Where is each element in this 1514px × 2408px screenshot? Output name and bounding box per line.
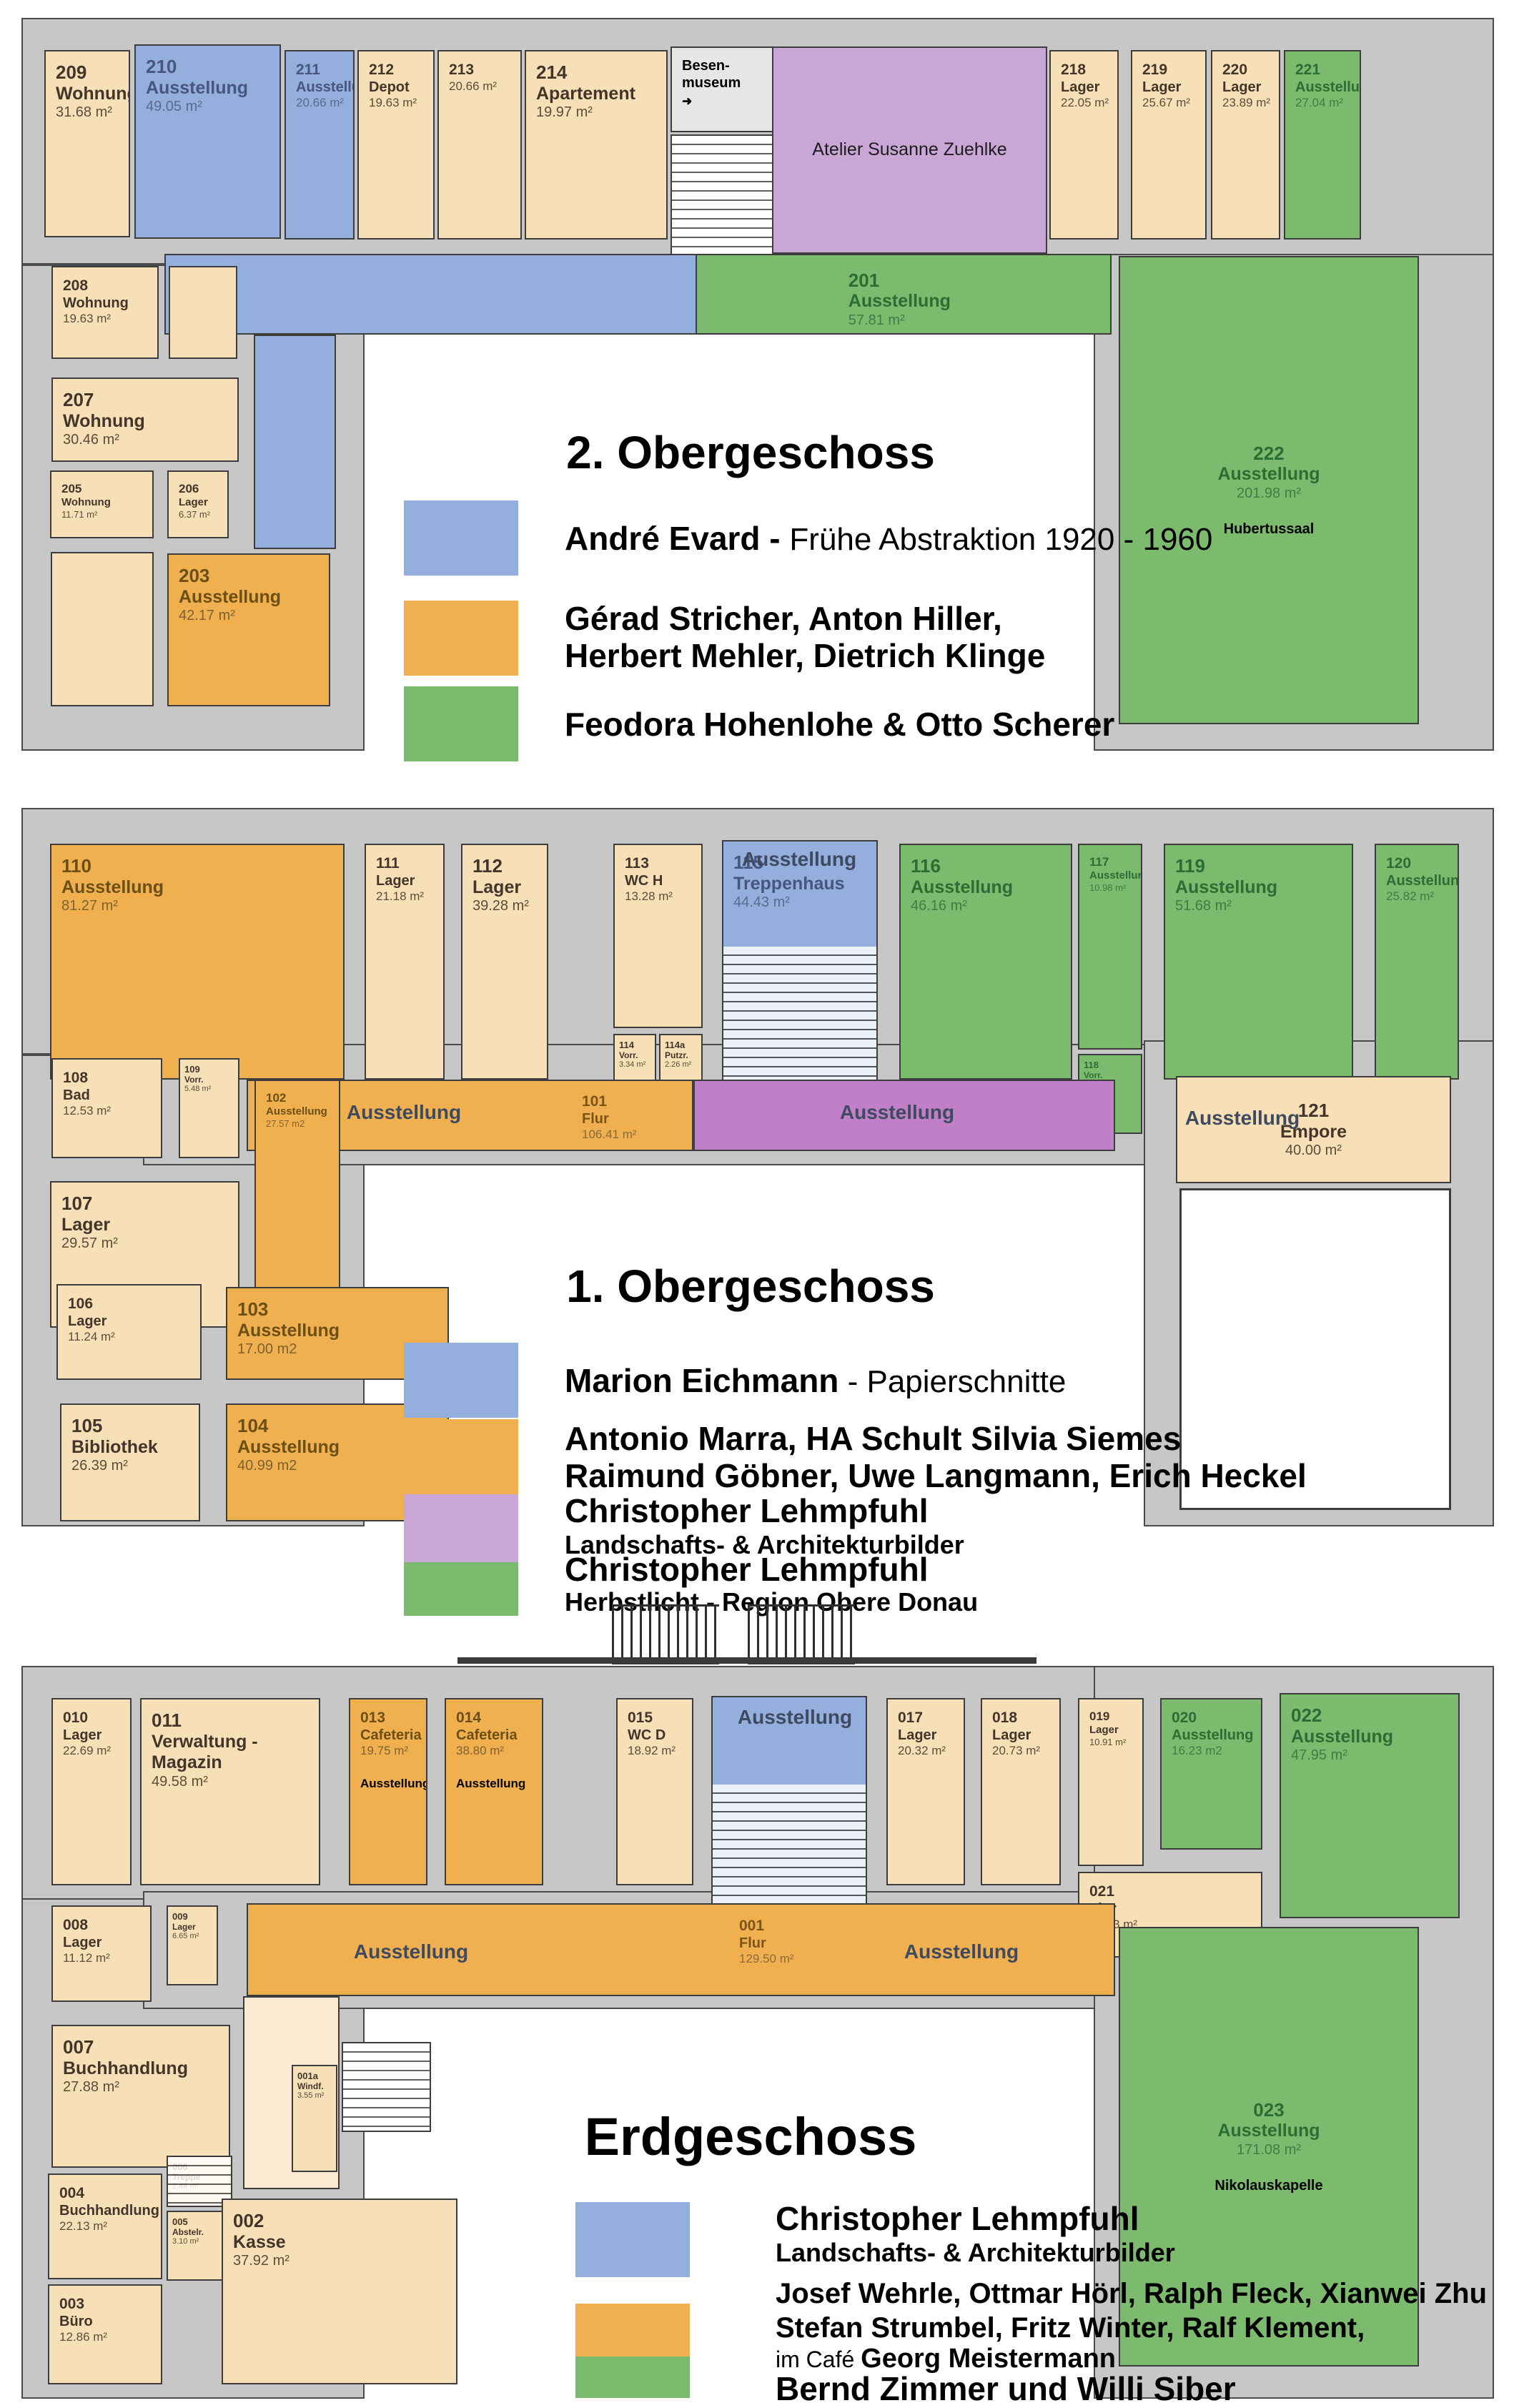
og1-legend-line-0-0: Marion Eichmann - Papierschnitte — [565, 1361, 1066, 1400]
room-name: Depot — [369, 79, 410, 97]
room-109: 109Vorr.5.48 m² — [179, 1058, 239, 1158]
room-number: 023 — [1253, 2099, 1284, 2121]
room-area: 10.98 m² — [1089, 882, 1126, 893]
room-number: 014 — [456, 1709, 481, 1727]
room-area: 13.28 m² — [625, 889, 673, 904]
room-number: 207 — [63, 389, 94, 411]
room-subtitle: Nikolauskapelle — [1214, 2178, 1322, 2195]
og2-title: 2. Obergeschoss — [443, 426, 1058, 488]
arrow-right-icon: ➜ — [682, 94, 692, 109]
room-number: 018 — [992, 1709, 1017, 1727]
room-206: 206Lager6.37 m² — [167, 470, 229, 538]
room-number: 208 — [63, 277, 88, 295]
room-name: Lager — [1089, 1724, 1119, 1737]
legend-artist-names: Josef Wehrle, Ottmar Hörl, Ralph Fleck, … — [776, 2278, 1487, 2309]
room-116: 116Ausstellung46.16 m² — [899, 844, 1072, 1080]
og1-legend-swatch-2 — [404, 1494, 518, 1562]
museum-floor-plan: 209Wohnung31.68 m²210Ausstellung49.05 m²… — [0, 0, 1514, 2400]
room-number: 022 — [1291, 1704, 1322, 1727]
room-number: 218 — [1061, 61, 1086, 79]
corridor-label-text: Ausstellung — [904, 1940, 1019, 1963]
room-area: 11.12 m² — [63, 1951, 110, 1965]
room-area: 57.81 m² — [848, 312, 905, 330]
room-name: Lager — [1061, 79, 1099, 97]
room-area: 27.57 m2 — [266, 1118, 305, 1129]
legend-artist-names: Christopher Lehmpfuhl — [565, 1551, 929, 1588]
room-area: 21.18 m² — [376, 889, 424, 904]
room-number: 105 — [71, 1415, 102, 1437]
room-010: 010Lager22.69 m² — [51, 1698, 132, 1885]
eg-legend-swatch-2 — [575, 2357, 690, 2398]
room-203: 203Ausstellung42.17 m² — [167, 553, 330, 706]
legend-artist-names: André Evard - — [565, 520, 789, 557]
room-name: Ausstellung — [1217, 2121, 1320, 2142]
room-name: Verwaltung - Magazin — [152, 1732, 316, 1774]
room-area: 129.50 m² — [739, 1952, 794, 1966]
legend-artist-names: Marion Eichmann — [565, 1362, 838, 1399]
room-number: 205 — [61, 482, 81, 496]
room-area: 19.75 m² — [360, 1744, 408, 1758]
room-210: 210Ausstellung49.05 m² — [134, 44, 281, 239]
room-number: 019 — [1089, 1709, 1109, 1724]
room-name: Lager — [172, 1922, 196, 1932]
room-area: 49.05 m² — [146, 99, 202, 116]
corridor-label-text: Ausstellung — [738, 1706, 852, 1728]
room-name: Ausstellung — [1089, 869, 1142, 882]
room-area: 22.69 m² — [63, 1744, 111, 1758]
og2-area-22 — [51, 552, 154, 706]
eg-stair-railing-2 — [457, 1657, 1036, 1664]
room-022: 022Ausstellung47.95 m² — [1280, 1693, 1460, 1918]
room-area: 25.67 m² — [1142, 96, 1190, 110]
room-area: 3.10 m² — [172, 2237, 199, 2246]
room-area: 19.63 m² — [369, 96, 417, 110]
room-name: Lager — [1222, 79, 1261, 97]
room-area: 201.98 m² — [1237, 485, 1301, 503]
room-115: 115Treppenhaus44.43 m² — [722, 840, 878, 1094]
room-name: Bad — [63, 1087, 90, 1105]
room-102: 102Ausstellung27.57 m2 — [254, 1080, 340, 1308]
room-name: Cafeteria — [456, 1727, 518, 1745]
room-number: 015 — [628, 1709, 653, 1727]
corridor-label-text: Ausstellung — [840, 1101, 954, 1123]
og2-legend-line-0-0: André Evard - Frühe Abstraktion 1920 - 1… — [565, 519, 1212, 558]
room-name: Lager — [63, 1935, 102, 1952]
room-number: 209 — [56, 61, 86, 84]
legend-artist-names: Christopher Lehmpfuhl — [565, 1492, 929, 1529]
room-number: 110 — [61, 855, 91, 877]
room-014: 014Cafeteria38.80 m²Ausstellung — [445, 1698, 543, 1885]
room-117: 117Ausstellung10.98 m² — [1078, 844, 1142, 1050]
room-besen-museum: Besen-museum➜ — [671, 46, 779, 132]
room-number: 221 — [1295, 61, 1320, 79]
room-name: Lager — [68, 1313, 107, 1331]
room-name: Lager — [1142, 79, 1181, 97]
room-area: 106.41 m² — [582, 1127, 637, 1142]
room-number: 013 — [360, 1709, 385, 1727]
room-003: 003Büro12.86 m² — [48, 2284, 162, 2384]
room-001a: 001aWindf.3.55 m² — [292, 2065, 337, 2172]
room-area: 2.26 m² — [665, 1060, 691, 1070]
room-number: 010 — [63, 1709, 88, 1727]
room-017: 017Lager20.32 m² — [886, 1698, 965, 1885]
room-202: 202Ausstellung87.36 m² — [164, 254, 715, 335]
room-name: Treppenhaus — [733, 874, 845, 895]
room-number: 111 — [376, 855, 400, 873]
room-205: 205Wohnung11.71 m² — [50, 470, 154, 538]
room-area: 20.66 m² — [296, 96, 344, 110]
room-name: Ausstellung — [848, 291, 951, 312]
room-name: Lager — [898, 1727, 936, 1745]
floor-title-text: 1. Obergeschoss — [566, 1260, 935, 1312]
eg-area-16 — [342, 2042, 431, 2132]
room-number: 213 — [449, 61, 474, 79]
room-219: 219Lager25.67 m² — [1131, 50, 1207, 240]
room-area: 18.92 m² — [628, 1744, 676, 1758]
room-number: 220 — [1222, 61, 1247, 79]
legend-exhibition-title: Frühe Abstraktion 1920 - 1960 — [789, 522, 1212, 557]
room-207: 207Wohnung30.46 m² — [51, 378, 239, 462]
og1-corridor-label-0: Ausstellung — [329, 1101, 479, 1130]
room-area: 25.82 m² — [1386, 889, 1434, 904]
room-area: 81.27 m² — [61, 898, 118, 915]
room-area: 22.05 m² — [1061, 96, 1109, 110]
room-number: 102 — [266, 1091, 286, 1105]
floor-title-text: 2. Obergeschoss — [566, 427, 935, 478]
room-name: Büro — [59, 2314, 93, 2331]
room-name: Ausstellung — [179, 587, 281, 608]
room-number: 101 — [582, 1093, 607, 1111]
room-area: 6.37 m² — [179, 509, 210, 520]
room-212: 212Depot19.63 m² — [357, 50, 435, 240]
room-number: 109 — [184, 1064, 200, 1075]
room-name: Wohnung — [56, 84, 130, 105]
room-name: Buchhandlung — [63, 2058, 188, 2080]
room-number: 116 — [911, 855, 941, 877]
room-area: 40.00 m² — [1285, 1143, 1342, 1160]
room-001: 001Flur129.50 m² — [729, 1908, 858, 1993]
room-number: 004 — [59, 2185, 84, 2203]
room-004: 004Buchhandlung22.13 m² — [48, 2173, 162, 2279]
eg-legend-line-1-0: Josef Wehrle, Ottmar Hörl, Ralph Fleck, … — [776, 2278, 1487, 2310]
room-number: 107 — [61, 1193, 92, 1215]
room-area: 20.32 m² — [898, 1744, 946, 1758]
room-area: 3.55 m² — [297, 2091, 324, 2101]
room-number: 114 — [619, 1040, 634, 1050]
room-number: 113 — [625, 855, 649, 873]
legend-exhibition-subtitle: Landschafts- & Architekturbilder — [776, 2238, 1175, 2267]
room-name: Putzr. — [665, 1050, 688, 1060]
legend-artist-names: Bernd Zimmer und Willi Siber — [776, 2370, 1236, 2407]
room-112: 112Lager39.28 m² — [461, 844, 548, 1080]
room-number: 005 — [172, 2216, 188, 2227]
room-name: Cafeteria — [360, 1727, 422, 1745]
room-name: Wohnung — [63, 295, 129, 312]
room-number: 103 — [237, 1298, 268, 1321]
room-number: 007 — [63, 2036, 94, 2058]
room-number: 108 — [63, 1070, 88, 1087]
corridor-label-text: Ausstellung — [1185, 1107, 1300, 1129]
stairs-icon — [713, 1785, 866, 1905]
room-area: 23.89 m² — [1222, 96, 1270, 110]
room-number: 017 — [898, 1709, 923, 1727]
room-number: 201 — [848, 270, 879, 292]
room-018: 018Lager20.73 m² — [981, 1698, 1061, 1885]
stairs-icon — [343, 2043, 430, 2131]
room-222: 222Ausstellung201.98 m²Hubertussaal — [1119, 256, 1419, 724]
room-name: Flur — [739, 1935, 766, 1953]
room-name: Ausstellung — [146, 78, 248, 99]
room-area: 27.88 m² — [63, 2079, 119, 2096]
og2-legend-swatch-1 — [404, 601, 518, 676]
room-019: 019Lager10.91 m² — [1078, 1698, 1144, 1866]
room-area: 17.00 m2 — [237, 1341, 297, 1358]
room-number: 119 — [1175, 855, 1205, 877]
og1-title: 1. Obergeschoss — [443, 1260, 1058, 1321]
room-214: 214Apartement19.97 m² — [525, 50, 668, 240]
room-name: WC H — [625, 873, 663, 890]
room-number: 222 — [1253, 443, 1284, 465]
room-name: Lager — [992, 1727, 1031, 1745]
room-008: 008Lager11.12 m² — [51, 1905, 152, 2002]
room-name: Vorr. — [619, 1050, 638, 1060]
floor-title-text: Erdgeschoss — [585, 2107, 917, 2166]
legend-exhibition-title: - Papierschnitte — [838, 1364, 1066, 1399]
room-area: 19.63 m² — [63, 312, 111, 326]
legend-text-prefix: im Café — [776, 2347, 861, 2372]
room-number: 003 — [59, 2296, 84, 2314]
room-number: 001 — [739, 1918, 764, 1935]
room-110: 110Ausstellung81.27 m² — [50, 844, 345, 1080]
room-number: 118 — [1084, 1060, 1099, 1070]
room-area: 47.95 m² — [1291, 1747, 1347, 1765]
room-007: 007Buchhandlung27.88 m² — [51, 2025, 230, 2168]
room-name: Wohnung — [63, 411, 145, 433]
og1-corridor-label-3: Ausstellung — [735, 848, 864, 877]
room-name: Atelier Susanne Zuehlke — [812, 139, 1006, 161]
room-area: 31.68 m² — [56, 104, 112, 122]
room-number: 020 — [1172, 1709, 1197, 1727]
room-113: 113WC H13.28 m² — [613, 844, 703, 1028]
room-111: 111Lager21.18 m² — [365, 844, 445, 1080]
room-105: 105Bibliothek26.39 m² — [60, 1403, 200, 1521]
room-subtitle: Hubertussaal — [1224, 521, 1315, 538]
room-name: Besen-museum — [682, 58, 775, 92]
legend-artist-names: Antonio Marra, HA Schult Silvia Siemes — [565, 1420, 1181, 1457]
legend-artist-names: Herbert Mehler, Dietrich Klinge — [565, 637, 1045, 674]
room-area: 46.16 m² — [911, 898, 967, 915]
room-name: Ausstellung — [1295, 79, 1361, 97]
room-area: 40.99 m2 — [237, 1458, 297, 1475]
og2-legend-swatch-0 — [404, 500, 518, 576]
room-area: 29.57 m² — [61, 1235, 118, 1253]
room-area: 12.86 m² — [59, 2330, 107, 2344]
eg-corridor-label-1: Ausstellung — [886, 1940, 1036, 1969]
corridor-label-text: Ausstellung — [742, 848, 856, 870]
room-area: 49.58 m² — [152, 1774, 208, 1791]
room-atelier-susanne-zuehlke: Atelier Susanne Zuehlke — [772, 46, 1047, 254]
legend-artist-names: Gérad Stricher, Anton Hiller, — [565, 600, 1002, 637]
room-number: 114a — [665, 1040, 685, 1050]
legend-artist-names: Raimund Göbner, Uwe Langmann, Erich Heck… — [565, 1457, 1307, 1494]
room-number: 211 — [296, 61, 320, 79]
room-101: 101Flur106.41 m² — [572, 1083, 686, 1151]
eg-stair-railing-1 — [748, 1604, 855, 1664]
room-108: 108Bad12.53 m² — [51, 1058, 162, 1158]
room-area: 44.43 m² — [733, 894, 790, 912]
room-area: 26.39 m² — [71, 1458, 128, 1475]
room-number: 112 — [472, 855, 503, 877]
room-name: Ausstellung — [911, 877, 1013, 899]
room-area: 39.28 m² — [472, 898, 529, 915]
room-number: 214 — [536, 61, 567, 84]
room-020: 020Ausstellung16.23 m2 — [1160, 1698, 1262, 1850]
room-220: 220Lager23.89 m² — [1211, 50, 1280, 240]
og1-legend-swatch-3 — [404, 1562, 518, 1616]
room-name: Buchhandlung — [59, 2203, 159, 2220]
room-209: 209Wohnung31.68 m² — [44, 50, 130, 237]
eg-stair-railing-0 — [612, 1604, 719, 1664]
og1-corridor-label-1: Ausstellung — [822, 1101, 972, 1130]
room-name: Ausstellung — [266, 1105, 327, 1118]
room-area: 5.48 m² — [184, 1085, 211, 1094]
corridor-label-text: Ausstellung — [354, 1940, 468, 1963]
og2-legend-line-1-0: Gérad Stricher, Anton Hiller, — [565, 599, 1002, 638]
legend-artist-names: Stefan Strumbel, Fritz Winter, Ralf Klem… — [776, 2312, 1365, 2344]
og2-legend-line-1-1: Herbert Mehler, Dietrich Klinge — [565, 636, 1045, 675]
room-name: Ausstellung — [1386, 873, 1459, 890]
room-number: 021 — [1089, 1883, 1114, 1901]
room-002: 002Kasse37.92 m² — [222, 2199, 457, 2384]
room-name: Lager — [472, 877, 521, 899]
legend-artist-names: Christopher Lehmpfuhl — [776, 2200, 1139, 2237]
og2-area-14 — [254, 335, 336, 549]
og1-corridor-label-2: Ausstellung — [1178, 1107, 1307, 1135]
room-120: 120Ausstellung25.82 m² — [1375, 844, 1459, 1080]
room-number: 219 — [1142, 61, 1167, 79]
og2-legend-swatch-2 — [404, 686, 518, 761]
room-number: 002 — [233, 2210, 264, 2232]
room-013: 013Cafeteria19.75 m²Ausstellung — [349, 1698, 427, 1885]
room-name: Ausstellung — [296, 79, 355, 97]
eg-title: Erdgeschoss — [443, 2106, 1058, 2178]
room-area: 30.46 m² — [63, 432, 119, 449]
room-area: 12.53 m² — [63, 1104, 111, 1118]
room-subtitle: Ausstellung — [456, 1777, 525, 1791]
room-number: 212 — [369, 61, 394, 79]
room-name: Ausstellung — [237, 1437, 340, 1459]
room-area: 19.97 m² — [536, 104, 593, 122]
og1-legend-line-2-0: Christopher Lehmpfuhl — [565, 1491, 929, 1530]
room-area: 16.23 m2 — [1172, 1744, 1222, 1758]
room-name: Ausstellung — [1175, 877, 1277, 899]
corridor-label-text: Ausstellung — [347, 1101, 461, 1123]
room-221: 221Ausstellung27.04 m² — [1284, 50, 1361, 240]
room-subtitle: Ausstellung — [360, 1777, 427, 1791]
room-name: Lager — [63, 1727, 102, 1745]
stairs-icon — [723, 947, 876, 1092]
legend-artist-names: Feodora Hohenlohe & Otto Scherer — [565, 706, 1114, 743]
room-name: Abstelr. — [172, 2227, 204, 2237]
room-119: 119Ausstellung51.68 m² — [1164, 844, 1353, 1080]
room-number: 104 — [237, 1415, 268, 1437]
og2-legend-line-2-0: Feodora Hohenlohe & Otto Scherer — [565, 705, 1114, 744]
room-name: Ausstellung — [1291, 1727, 1393, 1748]
room-number: 106 — [68, 1296, 93, 1313]
room-number: 210 — [146, 56, 177, 78]
room-211: 211Ausstellung20.66 m² — [285, 50, 355, 240]
eg-legend-line-2-0: Bernd Zimmer und Willi Siber — [776, 2369, 1236, 2408]
room-106: 106Lager11.24 m² — [56, 1284, 202, 1380]
room-name: Apartement — [536, 84, 635, 105]
room-name: Vorr. — [184, 1075, 203, 1085]
room-name: Kasse — [233, 2232, 286, 2254]
room-area: 42.17 m² — [179, 608, 235, 625]
eg-legend-line-0-0: Christopher Lehmpfuhl — [776, 2199, 1139, 2238]
room-218: 218Lager22.05 m² — [1049, 50, 1119, 240]
room-area: 6.65 m² — [172, 1932, 199, 1941]
room-area: 20.73 m² — [992, 1744, 1040, 1758]
room-name: Flur — [582, 1111, 609, 1128]
og1-legend-line-1-1: Raimund Göbner, Uwe Langmann, Erich Heck… — [565, 1456, 1307, 1495]
room-name: Ausstellung — [61, 877, 164, 899]
room-201: 201Ausstellung57.81 m² — [696, 254, 1112, 335]
og1-legend-swatch-1 — [404, 1419, 518, 1494]
eg-legend-line-1-1: Stefan Strumbel, Fritz Winter, Ralf Klem… — [776, 2312, 1365, 2344]
room-number: 008 — [63, 1917, 88, 1935]
eg-corridor-label-0: Ausstellung — [336, 1940, 486, 1969]
room-number: 001a — [297, 2071, 318, 2081]
room-number: 203 — [179, 565, 209, 587]
room-area: 3.34 m² — [619, 1060, 645, 1070]
room-name: Wohnung — [61, 496, 111, 509]
eg-corridor-label-2: Ausstellung — [731, 1706, 859, 1735]
room-208: 208Wohnung19.63 m² — [51, 266, 159, 359]
room-009: 009Lager6.65 m² — [167, 1905, 218, 1985]
room-name: WC D — [628, 1727, 666, 1745]
room-number: 009 — [172, 1911, 188, 1922]
room-area: 51.68 m² — [1175, 898, 1232, 915]
room-name: Ausstellung — [237, 1321, 340, 1342]
room-name: Windf. — [297, 2081, 324, 2091]
room-number: 011 — [152, 1709, 182, 1732]
room-011: 011Verwaltung - Magazin49.58 m² — [140, 1698, 320, 1885]
room-number: 206 — [179, 482, 199, 496]
room-name: Ausstellung — [1172, 1727, 1253, 1745]
og1-legend-line-1-0: Antonio Marra, HA Schult Silvia Siemes — [565, 1419, 1181, 1458]
room-area: 11.24 m² — [68, 1330, 115, 1344]
room-area: 10.91 m² — [1089, 1737, 1126, 1747]
room-area: 11.71 m² — [61, 509, 97, 520]
room-area: 171.08 m² — [1237, 2142, 1301, 2159]
room-name: Lager — [376, 873, 415, 890]
room-213: 21320.66 m² — [437, 50, 522, 240]
room-name: Lager — [179, 496, 208, 509]
og1-legend-line-3-0: Christopher Lehmpfuhl — [565, 1550, 929, 1589]
room-number: 117 — [1089, 855, 1109, 869]
eg-legend-line-0-1: Landschafts- & Architekturbilder — [776, 2238, 1175, 2268]
og2-area-18 — [169, 266, 237, 359]
room-name: Lager — [61, 1215, 110, 1236]
room-area: 38.80 m² — [456, 1744, 504, 1758]
room-number: 120 — [1386, 855, 1411, 873]
room-area: 37.92 m² — [233, 2253, 290, 2270]
room-area: 27.04 m² — [1295, 96, 1343, 110]
room-015: 015WC D18.92 m² — [616, 1698, 693, 1885]
eg-legend-swatch-0 — [575, 2202, 690, 2277]
room-name: Ausstellung — [1217, 464, 1320, 485]
room-name: Bibliothek — [71, 1437, 158, 1459]
